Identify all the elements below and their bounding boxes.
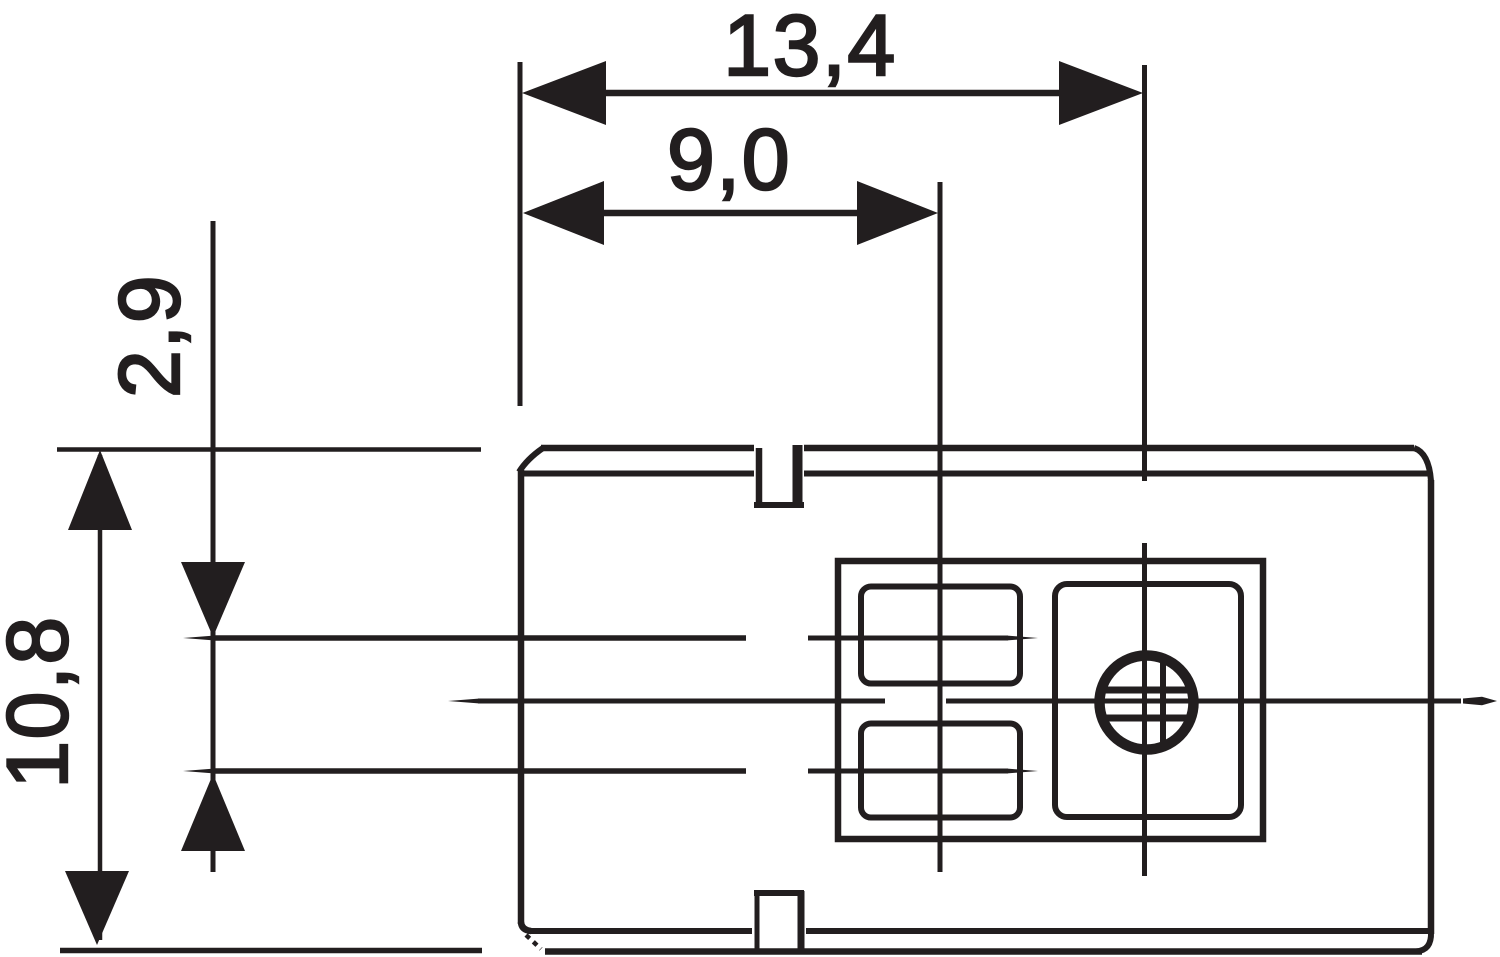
svg-text:10,8: 10,8 [0, 615, 86, 788]
svg-text:2,9: 2,9 [102, 274, 198, 398]
svg-text:9,0: 9,0 [667, 112, 791, 208]
svg-text:13,4: 13,4 [723, 0, 896, 94]
